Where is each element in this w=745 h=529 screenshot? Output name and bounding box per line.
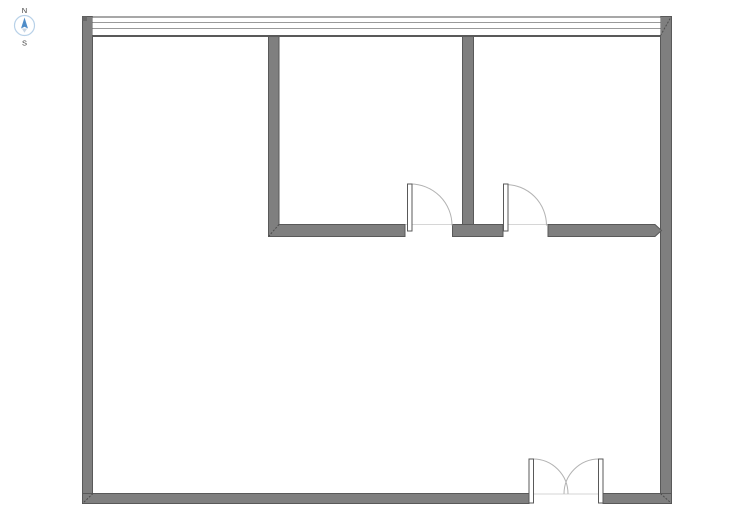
door-1-swing-arc: [411, 184, 453, 226]
door-2-swing-arc: [506, 185, 547, 226]
exterior-wall-bottom-right: [603, 494, 672, 504]
wall-corner-cap: [83, 17, 88, 22]
window-band-background: [93, 17, 661, 36]
compass-south-label: S: [22, 39, 27, 48]
compass-north-label: N: [22, 6, 27, 15]
entry-double-door-left-swing-arc: [533, 459, 568, 494]
entry-double-door-right-leaf: [599, 459, 604, 503]
window-band: [93, 17, 661, 36]
mitre-joints: [83, 17, 672, 504]
floorplan-canvas: N S: [0, 0, 745, 529]
partition-wall-segment-between-doors: [453, 225, 504, 237]
exterior-wall-right: [661, 17, 672, 504]
exterior-wall-left: [83, 17, 93, 504]
entry-double-door-left-leaf: [529, 459, 534, 503]
walls: [83, 17, 672, 504]
floorplan-drawing: N S: [0, 0, 745, 529]
entry-double-door-right-swing-arc: [564, 459, 599, 494]
compass-icon: N S: [15, 6, 35, 48]
door-1-leaf: [408, 184, 413, 231]
door-thresholds: [406, 225, 599, 495]
exterior-wall-bottom-left: [83, 494, 530, 504]
partition-wall-segment-right: [548, 225, 662, 237]
interior-wall-left-partition: [269, 36, 406, 237]
door-2-leaf: [504, 184, 509, 231]
interior-wall-middle-partition: [463, 36, 474, 232]
